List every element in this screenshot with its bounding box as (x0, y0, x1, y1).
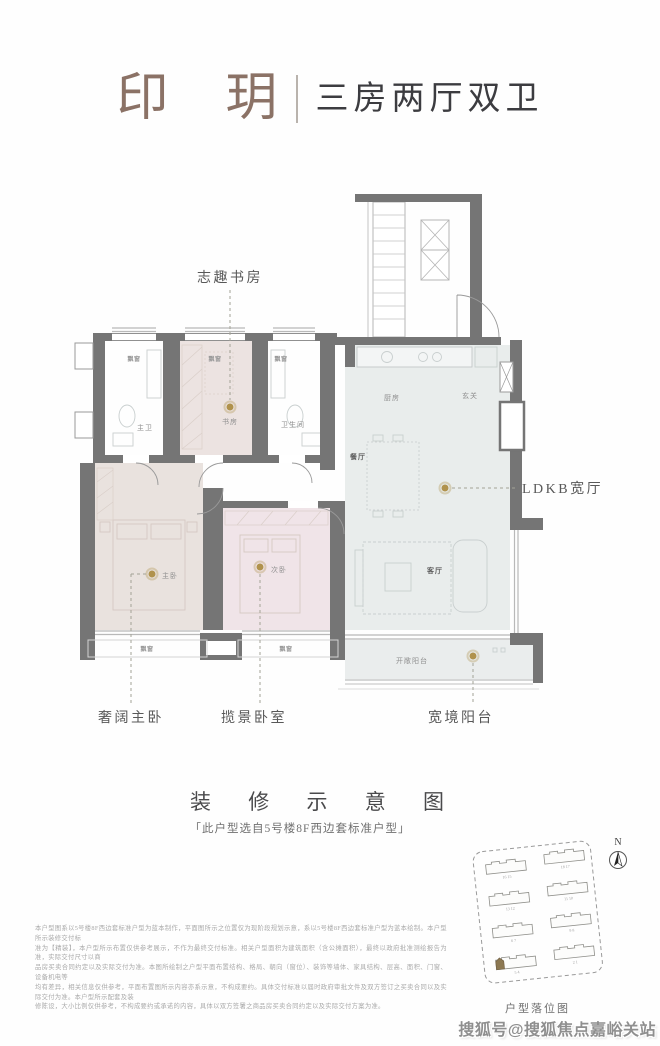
svg-text:揽景卧室: 揽景卧室 (221, 709, 287, 726)
svg-text:卫生间: 卫生间 (281, 420, 305, 429)
svg-text:13 12: 13 12 (506, 906, 515, 912)
compass-north-icon: N (610, 837, 627, 869)
svg-text:玄关: 玄关 (462, 391, 478, 400)
disclaimer: 本户型图系以5号楼8F西边套标准户型为蓝本制作，平面图所示之位置仅为现阶段规划示… (35, 924, 447, 1012)
stairwell-elevators (355, 194, 482, 345)
svg-text:LDKB宽厅: LDKB宽厅 (522, 480, 603, 497)
svg-text:2 1: 2 1 (572, 959, 577, 964)
building: 9 8 (550, 912, 592, 935)
floorplan-page: 印 玥 三房两厅双卫 (0, 0, 660, 1046)
building: 13 12 (489, 890, 531, 913)
svg-text:飘窗: 飘窗 (278, 645, 292, 653)
disclaimer-line: 准为【精装】，本户型所示布置仅供参考展示，不作为最终交付标准。相关户型面积为建筑… (35, 944, 447, 964)
disclaimer-line: 均有差异，相关信息仅供参考，平面布置图所示内容亦系示意，不构成要约。具体交付标准… (35, 983, 447, 1003)
disclaimer-line: 修陈设，大小比例仅供参考，不构成要约或承诺的内容，具体以双方签署之商品房买卖合同… (35, 1002, 447, 1012)
floor-plan: 飘窗 飘窗 飘窗 飘窗 飘窗 主卫 书房 卫生间 厨房 玄关 餐厅 客厅 开敞阳… (55, 190, 610, 735)
svg-text:厨房: 厨房 (384, 393, 400, 402)
svg-text:次卧: 次卧 (271, 565, 287, 574)
building: 16 15 (485, 858, 527, 881)
svg-text:飘窗: 飘窗 (207, 355, 221, 363)
disclaimer-line: 品房买卖合同约定以及实际交付为准。本图所绘制之户型平面布置结构、格局、朝向（窗位… (35, 963, 447, 983)
building: 11 10 (547, 880, 589, 903)
svg-text:9 8: 9 8 (569, 927, 574, 932)
layout-tagline: 三房两厅双卫 (316, 83, 544, 116)
svg-text:主卧: 主卧 (162, 571, 178, 580)
header: 印 玥 三房两厅双卫 (0, 64, 660, 134)
site-boundary-group: 16 15 18 17 13 12 11 10 6 7 9 8 (472, 840, 603, 984)
svg-text:书房: 书房 (222, 417, 238, 426)
svg-text:奢阔主卧: 奢阔主卧 (98, 710, 164, 726)
svg-text:5 4: 5 4 (514, 969, 519, 974)
svg-text:飘窗: 飘窗 (139, 645, 153, 653)
project-name: 印 玥 (116, 73, 299, 125)
header-divider (296, 75, 298, 123)
svg-text:飘窗: 飘窗 (273, 355, 287, 363)
svg-text:6 7: 6 7 (511, 938, 516, 943)
watermark: 搜狐号@搜狐焦点嘉峪关站 (458, 1016, 656, 1040)
svg-text:飘窗: 飘窗 (126, 355, 140, 363)
svg-text:N: N (614, 837, 621, 848)
svg-text:16 15: 16 15 (502, 874, 511, 880)
site-location-map: 16 15 18 17 13 12 11 10 6 7 9 8 (455, 832, 660, 1004)
svg-text:开敞阳台: 开敞阳台 (396, 656, 428, 665)
disclaimer-line: 本户型图系以5号楼8F西边套标准户型为蓝本制作，平面图所示之位置仅为现阶段规划示… (35, 924, 447, 944)
svg-text:餐厅: 餐厅 (349, 452, 366, 461)
svg-text:主卫: 主卫 (137, 423, 153, 432)
building: 18 17 (544, 848, 586, 871)
building: 6 7 (492, 922, 534, 945)
building-highlighted: 5 4 (495, 954, 537, 977)
building: 2 1 (554, 943, 596, 966)
caption-title: 装 修 示 意 图 (0, 786, 650, 816)
svg-text:客厅: 客厅 (426, 566, 443, 575)
svg-text:18 17: 18 17 (560, 864, 569, 870)
svg-text:志趣书房: 志趣书房 (197, 270, 263, 286)
svg-text:宽境阳台: 宽境阳台 (428, 709, 494, 726)
siteplan-label: 户型落位图 (455, 1000, 620, 1016)
svg-text:11 10: 11 10 (564, 895, 573, 901)
